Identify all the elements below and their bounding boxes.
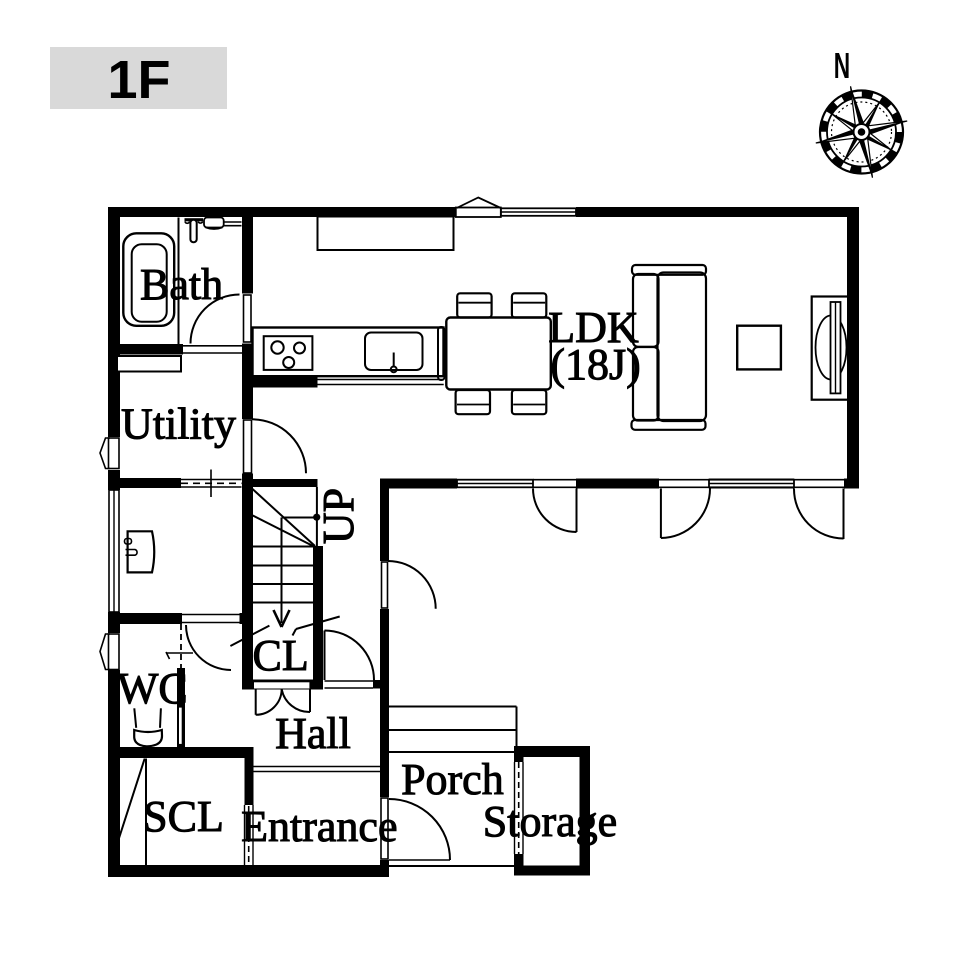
svg-text:Entrance: Entrance	[241, 802, 397, 851]
svg-text:N: N	[834, 47, 850, 86]
svg-text:Utility: Utility	[121, 400, 236, 449]
svg-text:UP: UP	[314, 488, 363, 544]
svg-text:SCL: SCL	[143, 792, 224, 841]
svg-text:(18J): (18J)	[550, 340, 640, 389]
svg-text:CL: CL	[252, 631, 308, 680]
svg-text:Bath: Bath	[140, 260, 223, 309]
svg-text:1F: 1F	[107, 50, 170, 110]
svg-text:Hall: Hall	[275, 709, 351, 758]
svg-text:Storage: Storage	[483, 797, 617, 846]
svg-text:WC: WC	[117, 664, 188, 713]
